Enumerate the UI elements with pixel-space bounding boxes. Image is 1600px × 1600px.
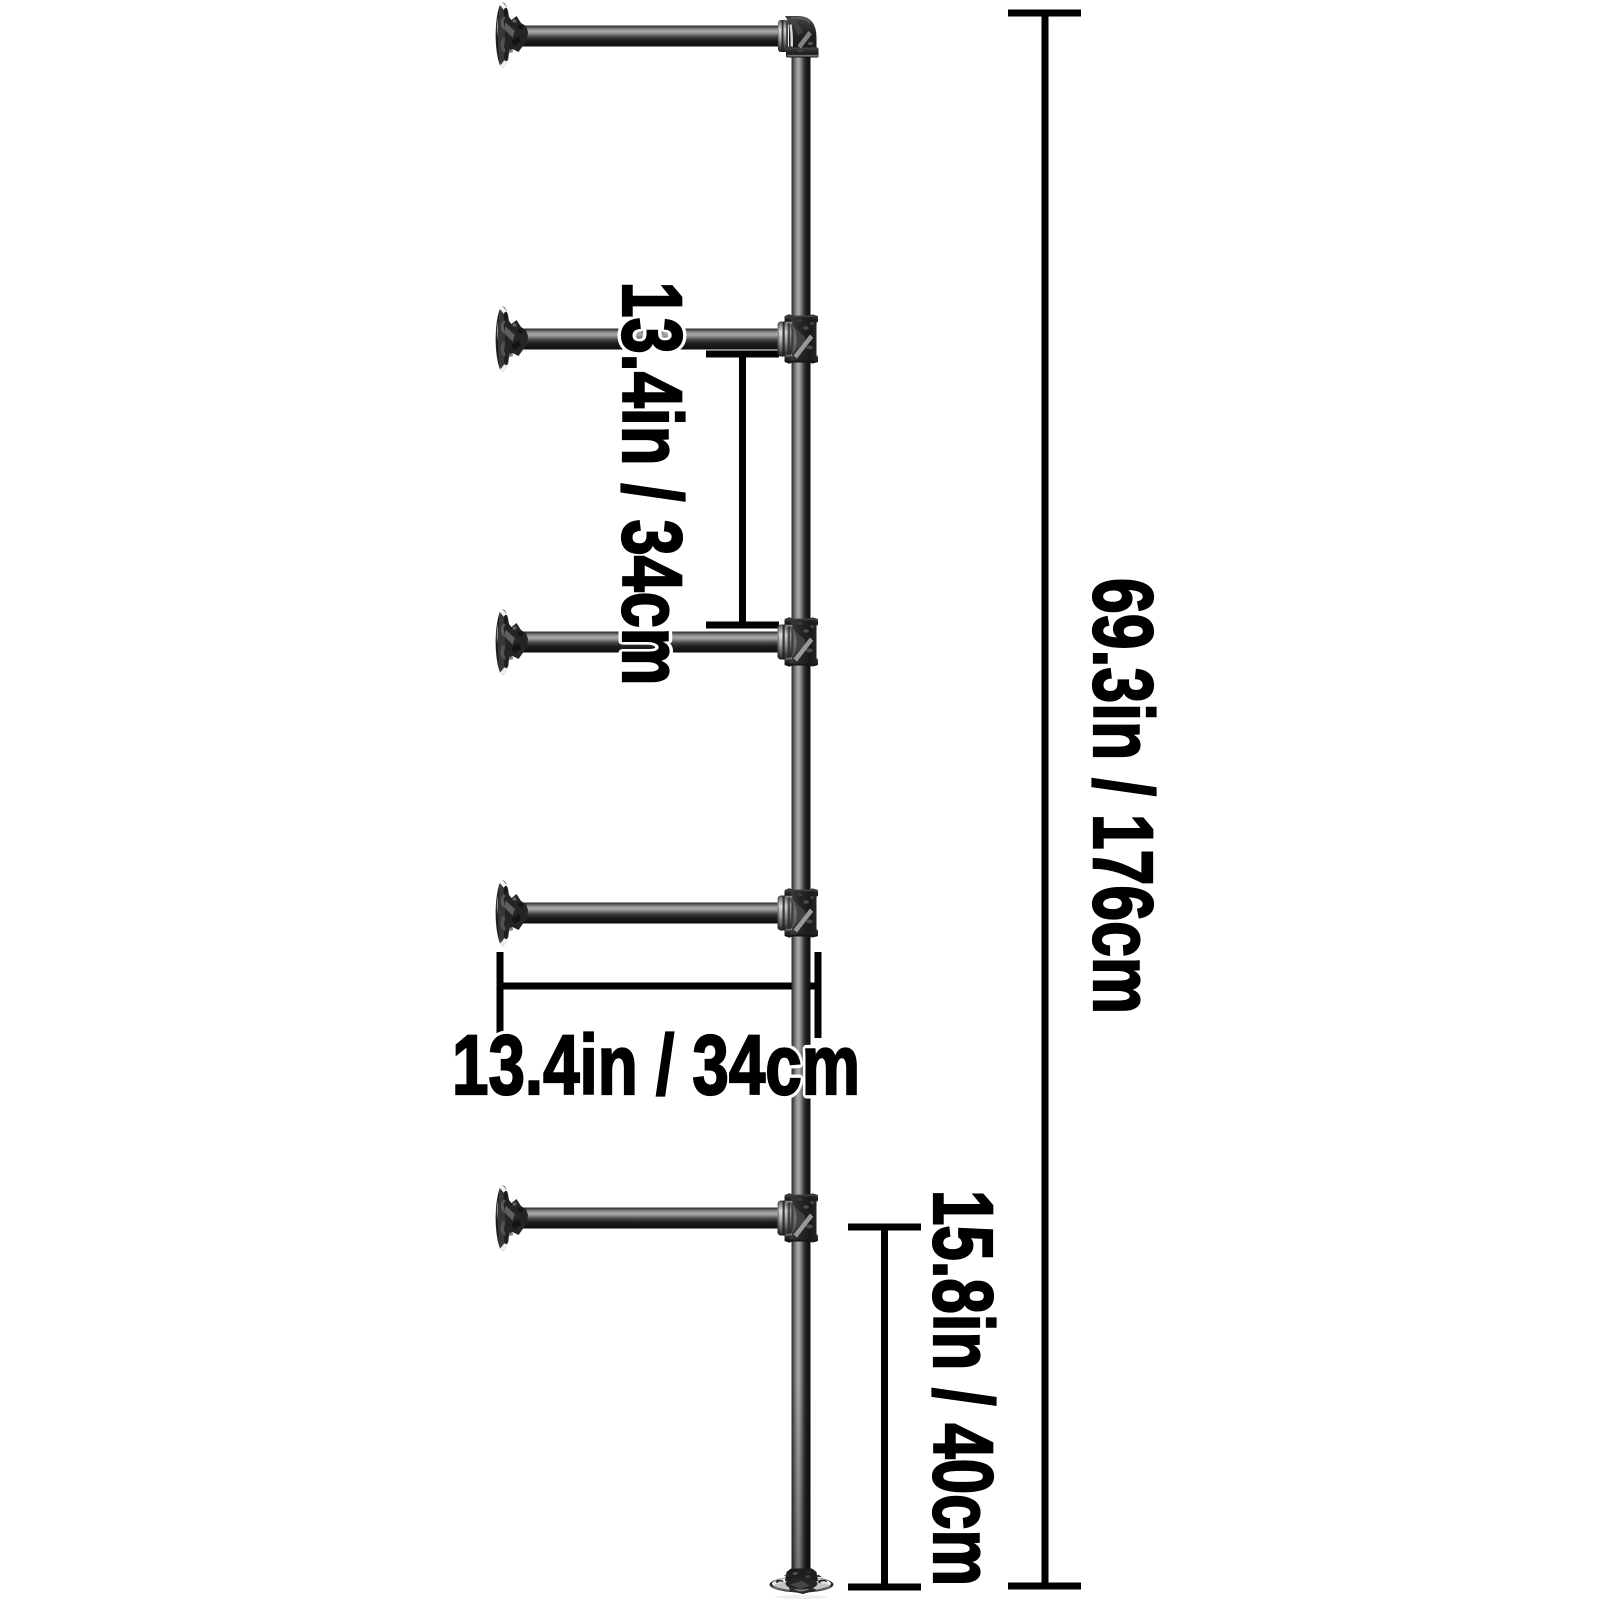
svg-text:69.3in / 176cm: 69.3in / 176cm xyxy=(1076,578,1170,1014)
svg-text:13.4in / 34cm: 13.4in / 34cm xyxy=(452,1018,860,1112)
svg-text:13.4in / 34cm: 13.4in / 34cm xyxy=(605,282,699,686)
svg-text:15.8in / 40cm: 15.8in / 40cm xyxy=(916,1190,1010,1586)
